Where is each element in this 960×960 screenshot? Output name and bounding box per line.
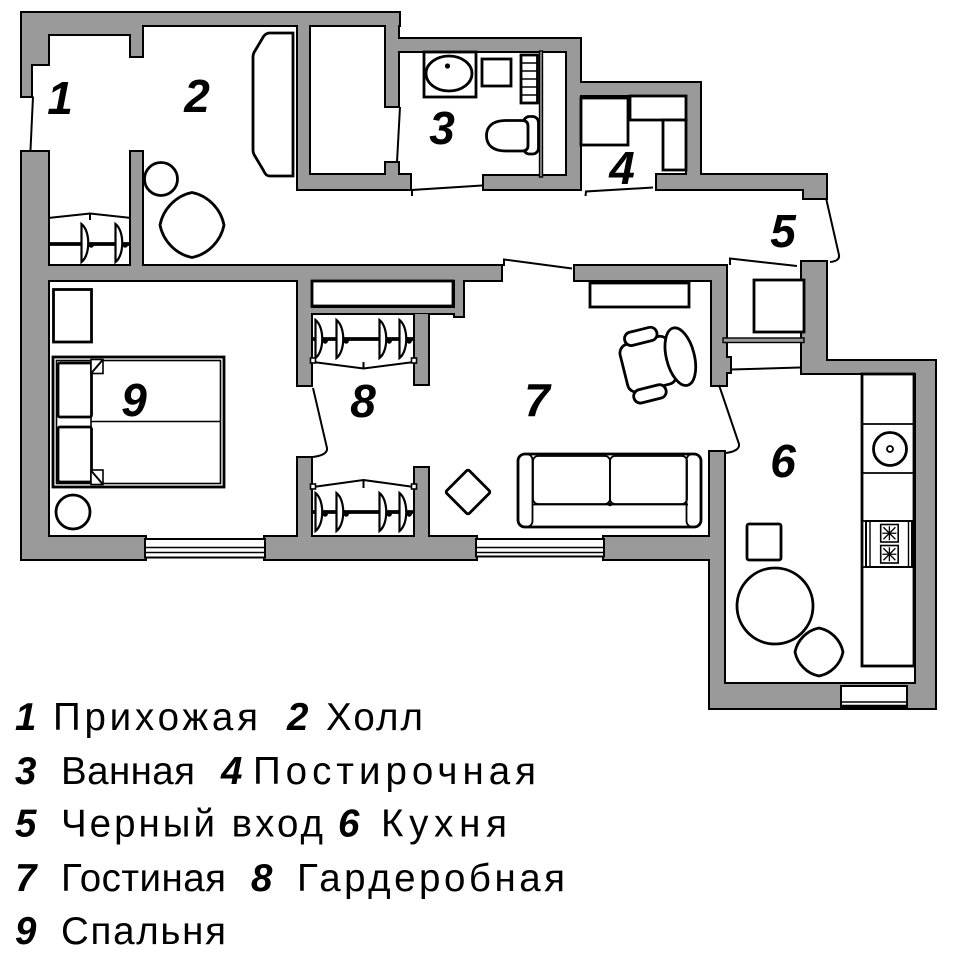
svg-text:9: 9 [121,374,147,426]
svg-text:1: 1 [47,72,73,124]
svg-text:2: 2 [183,70,210,122]
svg-text:5Черный вход6Кухня: 5Черный вход6Кухня [15,803,507,846]
svg-text:4: 4 [608,142,635,194]
svg-text:7: 7 [524,374,552,426]
svg-text:6: 6 [770,435,796,487]
svg-text:1Прихожая2Холл: 1Прихожая2Холл [15,696,423,739]
svg-text:5: 5 [770,205,797,257]
svg-text:8: 8 [350,375,376,427]
svg-text:3: 3 [429,102,455,154]
